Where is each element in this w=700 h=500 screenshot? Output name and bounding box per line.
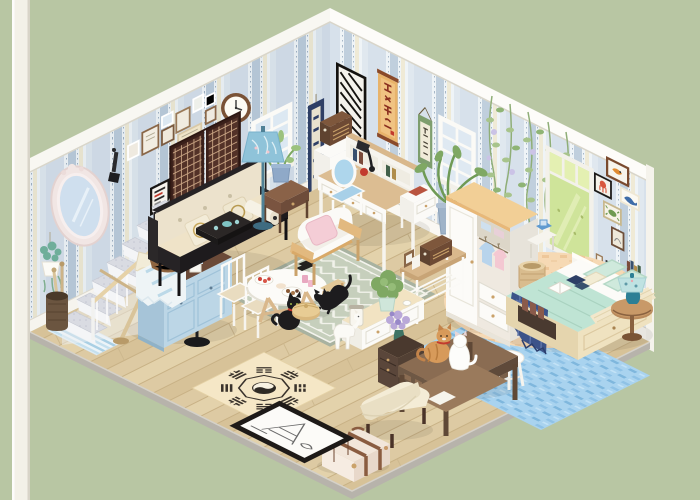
red-mug[interactable]: [360, 168, 368, 176]
left-edge-trim: [12, 0, 30, 500]
game-room-scene: left-wallright-wallwood-floorcrown-moldi…: [0, 0, 700, 500]
isometric-room-canvas: [0, 0, 700, 500]
straw-pouf[interactable]: [292, 303, 320, 321]
teacup: [403, 301, 411, 306]
calligraphy-scroll[interactable]: [377, 69, 398, 148]
